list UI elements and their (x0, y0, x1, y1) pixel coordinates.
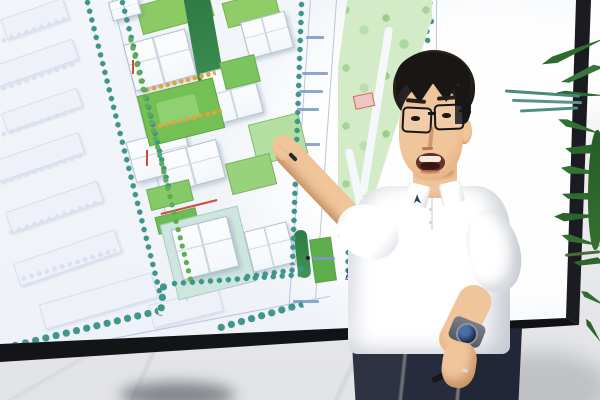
palm-blade (512, 99, 582, 104)
palm-leaf (583, 317, 600, 345)
palm-blade (505, 89, 580, 97)
palm-leaf (579, 288, 600, 312)
palm-leaf (561, 59, 600, 89)
photo-stage: 总平面 (0, 0, 600, 400)
palm-leaf (540, 37, 600, 69)
palm-blade (520, 106, 578, 112)
palm-leaf (573, 254, 600, 270)
palm-stem (565, 250, 600, 256)
potted-plant (0, 0, 600, 400)
